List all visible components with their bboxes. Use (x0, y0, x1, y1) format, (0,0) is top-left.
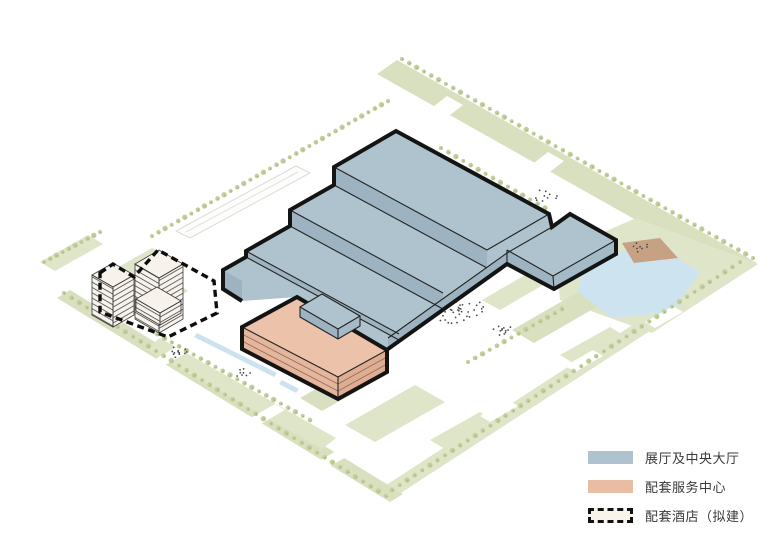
legend-item-hotel: 配套酒店（拟建） (588, 508, 778, 522)
legend-item-exhibition: 展厅及中央大厅 (588, 450, 778, 464)
legend-swatch-exhibition (588, 451, 633, 464)
legend: 展厅及中央大厅 配套服务中心 配套酒店（拟建） (588, 450, 778, 537)
legend-label-hotel: 配套酒店（拟建） (645, 506, 753, 525)
legend-swatch-service (588, 480, 633, 493)
legend-label-exhibition: 展厅及中央大厅 (645, 448, 740, 467)
legend-label-service: 配套服务中心 (645, 477, 726, 496)
planned-hotel-building (92, 250, 217, 337)
legend-item-service: 配套服务中心 (588, 479, 778, 493)
legend-swatch-hotel (588, 508, 633, 523)
masterplan-canvas: 展厅及中央大厅 配套服务中心 配套酒店（拟建） (0, 0, 780, 551)
